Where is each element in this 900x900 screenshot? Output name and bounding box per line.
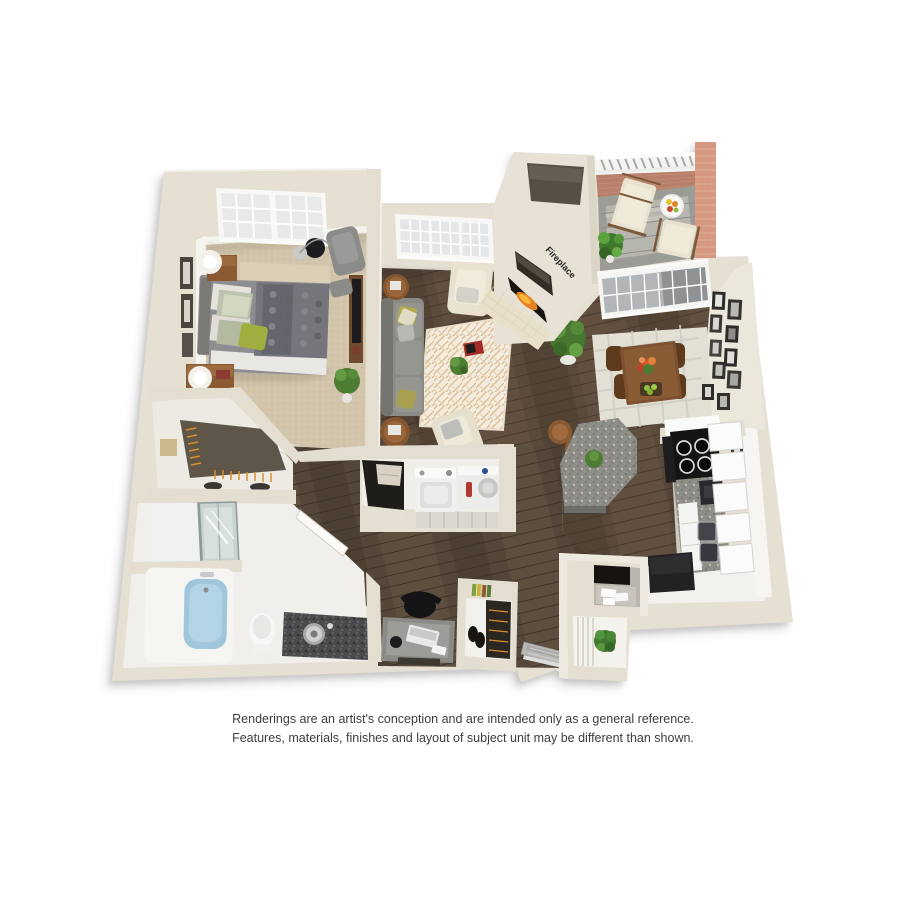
svg-text:Features, materials, finishes: Features, materials, finishes and layout… [232, 731, 694, 745]
svg-text:Renderings are an artist's con: Renderings are an artist's conception an… [232, 712, 694, 726]
